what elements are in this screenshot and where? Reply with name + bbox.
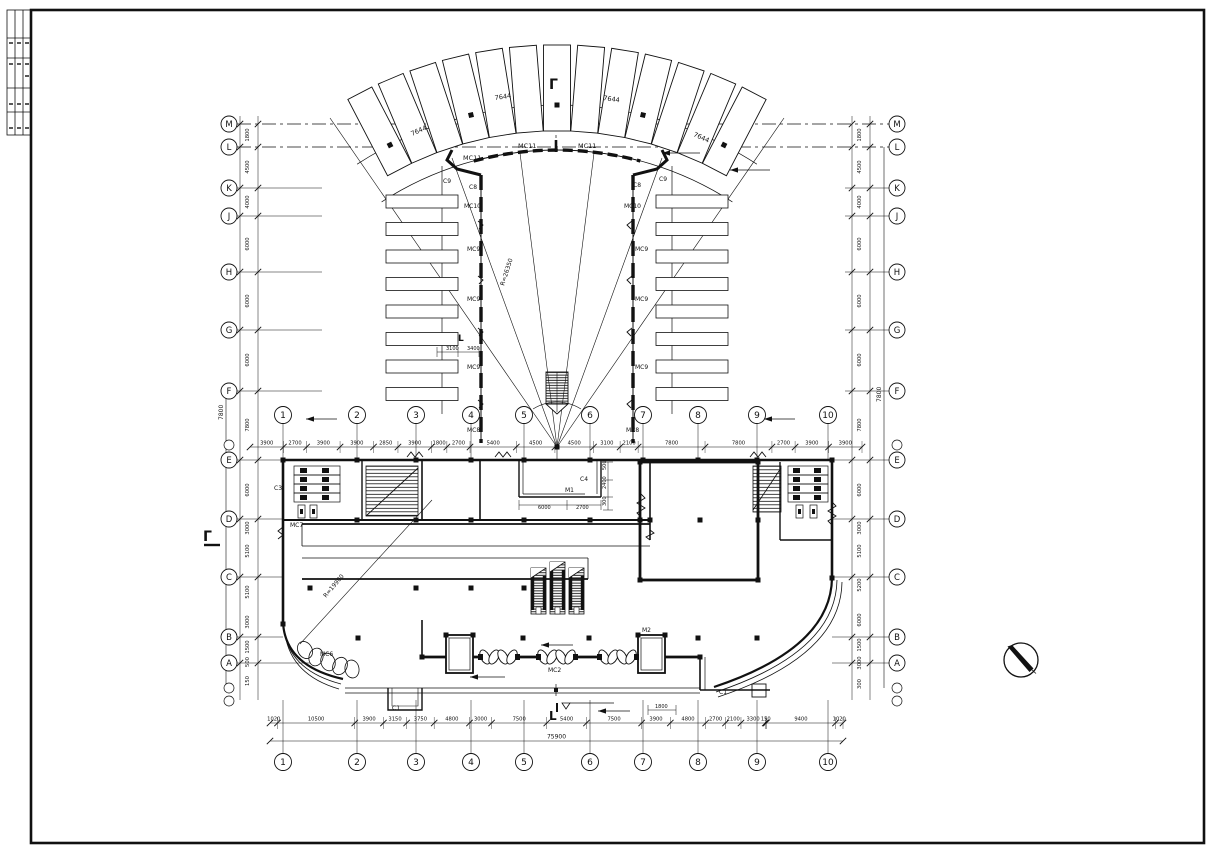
door-jamb [597, 654, 602, 660]
plan-label: MC10 [624, 203, 641, 210]
plan-label: MC9 [635, 246, 648, 253]
stair-rail [562, 570, 565, 610]
grid-sub-bubble [224, 683, 234, 693]
dim-value: 5400 [560, 717, 573, 723]
floor-plan-drawing: 1020105003900315037504800300075005400750… [0, 0, 1213, 855]
plan-label: MC2 [548, 667, 561, 674]
grid-bubble-number-label: 7 [640, 411, 646, 421]
dim-value: 3100 [600, 441, 613, 447]
dim-value: 2700 [709, 717, 722, 723]
column-marker [355, 518, 360, 523]
grid-bubble-number-label: 10 [822, 758, 834, 768]
grid-bubble-number-label: 3 [413, 758, 419, 768]
grid-sub-bubble [892, 440, 902, 450]
grid-bubble-number-label: 3 [413, 411, 419, 421]
plan-label: C9 [443, 178, 451, 185]
plan-label: MC11 [518, 142, 536, 150]
plan-label: Γ [203, 529, 212, 545]
dim-value: 4800 [445, 717, 458, 723]
grid-bubble-letter-label: K [226, 184, 232, 194]
stair-rail [543, 576, 546, 610]
dim-value: 6000 [857, 483, 863, 496]
dim-value: 3900 [260, 441, 273, 447]
dim-value: 1500 [857, 638, 863, 651]
arc-tick [555, 103, 560, 108]
dim-value: 3900 [317, 441, 330, 447]
column-marker [636, 633, 641, 638]
leader-arrow-head [598, 708, 606, 713]
grid-sub-bubble [892, 683, 902, 693]
dim-value: 2700 [288, 441, 301, 447]
grid-sub-bubble [224, 440, 234, 450]
plan-label: R=26350 [499, 257, 514, 286]
dim-value: 2100 [623, 441, 636, 447]
plan-label: 7800 [218, 405, 225, 420]
wing-room-row [386, 360, 458, 373]
door-jamb [515, 654, 520, 660]
plan-label: 500 [602, 460, 608, 470]
dim-value: 3900 [805, 441, 818, 447]
grid-bubble-number-label: 9 [754, 758, 760, 768]
grid-bubble-number-label: 2 [354, 411, 360, 421]
dim-value: 3000 [245, 521, 251, 534]
grid-bubble-number-label: 6 [587, 758, 593, 768]
column-marker [469, 586, 474, 591]
stair-rail [531, 576, 534, 610]
column-marker [414, 586, 419, 591]
grid-bubble-number-label: 10 [822, 411, 834, 421]
plan-label: C9 [659, 176, 667, 183]
grid-bubble-letter-label: A [226, 659, 232, 669]
dim-value: 6000 [245, 353, 251, 366]
column-marker [444, 633, 449, 638]
dim-value: 3000 [857, 521, 863, 534]
door-jamb [478, 654, 483, 660]
dim-value: 6000 [857, 613, 863, 626]
fan-panel [509, 45, 543, 133]
column-marker [648, 518, 653, 523]
plan-label: 6000 [538, 505, 551, 511]
plan-label: MC9 [467, 246, 480, 253]
grid-bubble-number-label: 4 [468, 758, 474, 768]
fan-panels [348, 45, 766, 176]
column-marker [522, 518, 527, 523]
dim-value: 2850 [379, 441, 392, 447]
grid-bubble-letter-label: M [893, 120, 900, 130]
dim-value: 3900 [839, 441, 852, 447]
column-marker [638, 460, 643, 465]
column-marker [587, 636, 592, 641]
column-marker [471, 633, 476, 638]
radius-line-19900 [300, 500, 432, 644]
plan-label: L [458, 334, 464, 344]
grid-bubble-number-label: 1 [280, 758, 286, 768]
wing-room-row [656, 360, 728, 373]
plan-label: 1800 [655, 704, 668, 710]
grid-bubble-letter-label: C [894, 573, 900, 583]
leader-arrow-head [730, 167, 738, 172]
grid-bubble-number-label: 6 [587, 411, 593, 421]
column-marker [698, 518, 703, 523]
column-marker [308, 586, 313, 591]
dim-value: 7800 [732, 441, 745, 447]
dim-value: 7800 [857, 418, 863, 431]
dim-value: 1800 [245, 128, 251, 141]
grid-bubble-letter-label: J [227, 212, 231, 222]
grid-bubble-letter-label: D [226, 515, 233, 525]
column-marker [755, 636, 760, 641]
dim-value: 1800 [857, 128, 863, 141]
dim-value: 6000 [857, 353, 863, 366]
grid-bubble-number-label: 5 [521, 411, 527, 421]
grid-bubble-number-label: 1 [280, 411, 286, 421]
wing-room-row [386, 305, 458, 318]
plan-label: 3100 [446, 346, 459, 352]
column-marker [756, 518, 761, 523]
column-marker [756, 578, 761, 583]
dim-value: 3150 [388, 717, 401, 723]
door-jamb [573, 654, 578, 660]
main-stair-flights [531, 562, 584, 614]
dim-value: 4000 [857, 195, 863, 208]
dim-value: 3000 [857, 656, 863, 669]
plan-label: Γ [549, 77, 558, 93]
grid-bubble-number-label: 4 [468, 411, 474, 421]
wing-room-row [656, 278, 728, 291]
grid-bubble-letter-label: C [226, 573, 232, 583]
column-marker [830, 458, 835, 463]
plan-label: MC11 [463, 154, 481, 162]
dim-value: 5100 [245, 585, 251, 598]
dim-value: 5200 [857, 578, 863, 591]
stair-rail [569, 576, 572, 610]
wing-room-row [656, 195, 728, 208]
column-marker [521, 636, 526, 641]
dim-value: 9400 [794, 717, 807, 723]
grid-bubble-letter-label: G [226, 326, 233, 336]
wing-room-row [386, 250, 458, 263]
dim-value: 4500 [245, 160, 251, 173]
column-marker [588, 518, 593, 523]
plan-label: MC8 [626, 427, 639, 434]
column-markers [281, 458, 835, 660]
grid-bubble-letter-label: D [894, 515, 901, 525]
grid-bubble-letter-label: L [227, 143, 232, 153]
stair-fan-center [546, 372, 568, 414]
fan-panel [571, 45, 605, 133]
plan-label: C8 [469, 184, 477, 191]
dim-value: 3300 [747, 717, 760, 723]
column-marker [756, 460, 761, 465]
text-labels: ΓΓLL7644764476447644MC11MC11MC11C9C8C9C8… [203, 77, 883, 723]
dim-value: 1800 [433, 441, 446, 447]
stair-rail [550, 570, 553, 610]
dim-value: 10500 [308, 717, 325, 723]
plan-label: R=19900 [322, 573, 346, 599]
plan-label: C3 [274, 485, 282, 492]
grid-bubble-letter-label: H [226, 268, 232, 278]
stair-rail [581, 576, 584, 610]
dim-value: 150 [761, 717, 771, 723]
column-marker [356, 636, 361, 641]
plan-label: C4 [580, 476, 588, 483]
dim-value: 150 [245, 676, 251, 686]
door-jamb [536, 654, 541, 660]
plan-label: MC9 [467, 364, 480, 371]
column-marker [638, 518, 643, 523]
plan-label: C1 [392, 705, 400, 712]
wing-room-rows [386, 195, 728, 401]
wing-room-row [386, 195, 458, 208]
dim-value: 6000 [245, 294, 251, 307]
grid-bubble-letter-label: H [894, 268, 900, 278]
grid-bubble-letter-label: J [895, 212, 899, 222]
leader-arrow-head [306, 416, 314, 421]
dim-value: 4800 [681, 717, 694, 723]
wing-room-row [656, 223, 728, 236]
plan-label: MC10 [464, 203, 481, 210]
wing-room-row [386, 278, 458, 291]
plan-label: M1 [565, 487, 574, 494]
column-marker [414, 518, 419, 523]
dim-value: 7500 [607, 717, 620, 723]
plan-label: M2 [642, 627, 651, 634]
plan-label: 300 [602, 496, 608, 506]
dim-value: 300 [857, 679, 863, 689]
dim-value: 5100 [857, 544, 863, 557]
dim-value: 4000 [245, 195, 251, 208]
dim-value: 3000 [474, 717, 487, 723]
dim-value: 4500 [568, 441, 581, 447]
grid-sub-bubble [892, 696, 902, 706]
plan-label: MC7 [290, 522, 303, 529]
dim-value: 6000 [857, 237, 863, 250]
column-marker [281, 622, 286, 627]
stair-flight [531, 568, 546, 614]
wing-room-row [656, 388, 728, 401]
stair-left-wing [366, 466, 418, 516]
dim-value: 5100 [245, 544, 251, 557]
dim-value: 4500 [529, 441, 542, 447]
grid-bubble-number-label: 2 [354, 758, 360, 768]
dim-value: 7800 [665, 441, 678, 447]
plan-label: 7800 [876, 387, 883, 402]
plan-label: C1 [719, 689, 727, 696]
stair-slot [555, 607, 560, 614]
column-marker [420, 655, 425, 660]
dim-value: 2700 [777, 441, 790, 447]
grid-bubble-letter-label: F [227, 387, 232, 397]
cad-floor-plan-sheet: 1020105003900315037504800300075005400750… [0, 0, 1213, 855]
stair-slot [536, 607, 541, 614]
wing-room-row [656, 250, 728, 263]
wing-room-row [656, 333, 728, 346]
grid-bubble-letter-label: F [895, 387, 900, 397]
toilet-right [788, 466, 828, 518]
grid-bubble-letter-label: G [894, 326, 901, 336]
dim-value: 500 [245, 657, 251, 667]
grid-bubble-letter-label: B [226, 633, 232, 643]
column-marker [638, 578, 643, 583]
title-block [7, 10, 31, 135]
stair-slot [574, 607, 579, 614]
dim-value: 6000 [857, 294, 863, 307]
plan-label: MC8 [467, 427, 480, 434]
column-marker [469, 518, 474, 523]
plan-label: MC9 [635, 296, 648, 303]
dim-value: 3900 [649, 717, 662, 723]
grid-bubble-letter-label: L [895, 143, 900, 153]
stair-flight [550, 562, 565, 614]
fan-panel-rect [509, 45, 543, 133]
dim-value: 1500 [245, 640, 251, 653]
shrub-symbols [294, 639, 360, 679]
wing-room-row [386, 223, 458, 236]
wing-room-row [656, 305, 728, 318]
dim-value: 5400 [487, 441, 500, 447]
plan-label: MC9 [467, 296, 480, 303]
grid-bubble-letter-label: E [226, 456, 231, 466]
plan-label: 2700 [576, 505, 589, 511]
grid-bubble-number-label: 5 [521, 758, 527, 768]
plan-label: 2400 [602, 476, 608, 489]
dim-value: 6000 [245, 237, 251, 250]
stair-right-wing [753, 466, 781, 512]
dim-value: 7800 [245, 418, 251, 431]
stair-flight [569, 568, 584, 614]
grid-bubble-letter-label: B [894, 633, 900, 643]
grid-bubble-number-label: 8 [695, 411, 701, 421]
grid-bubble-letter-label: E [894, 456, 899, 466]
dim-value: 4500 [857, 160, 863, 173]
plan-label: L [549, 709, 557, 723]
plan-label: MC6 [320, 651, 333, 658]
grid-bubble-number-label: 7 [640, 758, 646, 768]
column-marker [696, 636, 701, 641]
leader-arrow-head [470, 674, 478, 679]
column-marker [698, 655, 703, 660]
column-marker [663, 633, 668, 638]
toilet-left [294, 466, 340, 518]
dim-value: 3900 [362, 717, 375, 723]
leader-arrow-head [541, 642, 549, 647]
entrance-door-leaves [478, 648, 639, 665]
dim-value: 3900 [408, 441, 421, 447]
column-marker [522, 586, 527, 591]
dim-value: 6000 [245, 483, 251, 496]
dim-value: 3000 [245, 615, 251, 628]
plan-label: MC9 [635, 364, 648, 371]
north-arrow-icon [1004, 643, 1038, 677]
plan-label: MC11 [578, 142, 596, 150]
grid-bubble-letter-label: K [894, 184, 900, 194]
dim-total: 75900 [547, 734, 566, 741]
grid-bubble-number-label: 9 [754, 411, 760, 421]
column-marker [830, 576, 835, 581]
grid-bubble-letter-label: A [894, 659, 900, 669]
grid-bubble-letter-label: M [225, 120, 232, 130]
plan-label: C8 [633, 182, 641, 189]
grid-bubble-number-label: 8 [695, 758, 701, 768]
wing-room-row [386, 388, 458, 401]
grid-sub-bubble [224, 696, 234, 706]
dim-value: 2100 [727, 717, 740, 723]
dim-value: 2700 [452, 441, 465, 447]
fan-panel-rect [571, 45, 605, 133]
wing-room-row [386, 333, 458, 346]
door-jamb [634, 654, 639, 660]
plan-label: 3400 [467, 346, 480, 352]
